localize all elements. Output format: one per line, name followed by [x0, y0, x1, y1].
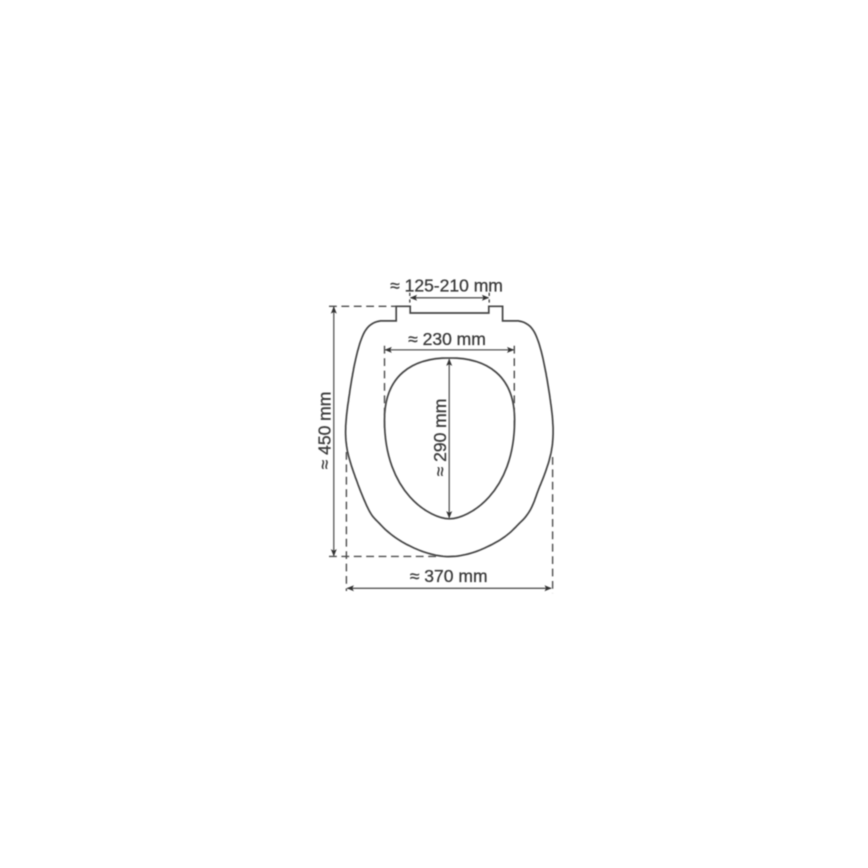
svg-text:≈ 230 mm: ≈ 230 mm: [408, 329, 486, 349]
svg-text:≈ 290 mm: ≈ 290 mm: [430, 399, 450, 477]
svg-text:≈ 370 mm: ≈ 370 mm: [410, 566, 488, 586]
svg-text:≈ 450 mm: ≈ 450 mm: [315, 392, 335, 470]
svg-text:≈ 125-210 mm: ≈ 125-210 mm: [390, 275, 503, 295]
